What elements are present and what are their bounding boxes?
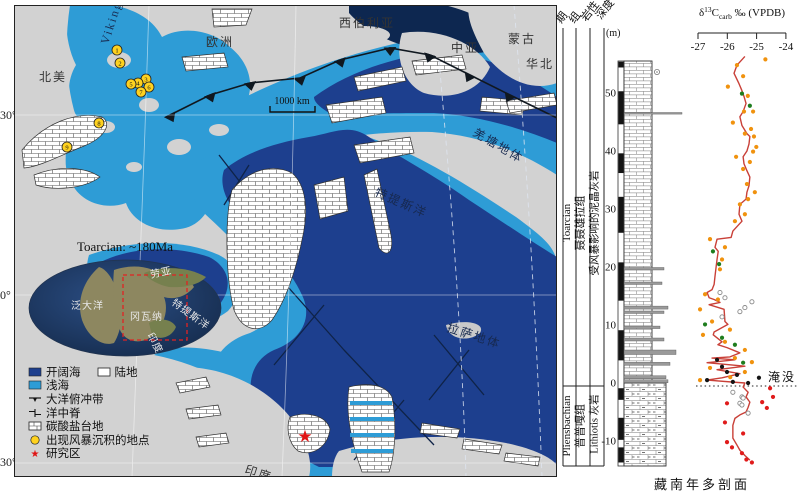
legend-land-label: 陆地 [115, 364, 138, 380]
land-swatch [97, 367, 111, 377]
svg-text:1: 1 [115, 47, 118, 54]
svg-text:泛大洋: 泛大洋 [71, 299, 104, 312]
latitude-label-30n: 30° [0, 108, 14, 123]
svg-text:10: 10 [605, 320, 617, 332]
map-legend: 开阔海 陆地 浅海 大洋俯冲带 洋中脊 碳酸盐台地 出现风暴沉积的地点 ★ [28, 365, 150, 460]
svg-text:9: 9 [65, 144, 68, 151]
svg-text:中亚: 中亚 [451, 40, 479, 55]
svg-text:西伯利亚: 西伯利亚 [339, 15, 395, 30]
depth-unit: (m) [606, 28, 620, 39]
stage-toarcian: Toarcian [561, 203, 573, 242]
axis-subscript: carb [719, 12, 732, 21]
axis-c: C [712, 7, 719, 19]
open-sea-swatch [28, 367, 42, 377]
svg-text:40: 40 [605, 146, 617, 158]
isotope-axis-ticks: -27-26-25-24 [691, 33, 794, 53]
latitude-label-0: 0° [0, 288, 14, 303]
svg-text:蒙古: 蒙古 [508, 31, 536, 46]
svg-text:-25: -25 [749, 41, 764, 53]
svg-text:-24: -24 [779, 41, 794, 53]
drowning-label: 淹没 [768, 369, 796, 384]
axis-units: ‰ (VPDB) [732, 7, 786, 19]
isotope-data-points [698, 57, 775, 464]
svg-text:北美: 北美 [39, 70, 67, 84]
strat-column-panel: 期 组 岩性 深度 (m) Toarcian Pliensbachian 聂聂雄… [556, 0, 800, 499]
study-area-swatch: ★ [28, 448, 42, 458]
svg-text:0: 0 [611, 378, 617, 390]
svg-text:欧洲: 欧洲 [206, 35, 234, 49]
isotope-axis-title: δ13Ccarb ‰ (VPDB) [699, 5, 785, 21]
svg-text:2: 2 [118, 60, 121, 67]
isotope-axis: δ13Ccarb ‰ (VPDB) -27-26-25-24 [691, 5, 794, 53]
scale-bar-label: 1000 km [274, 96, 310, 107]
figure: 30° 0° 30° [0, 0, 800, 499]
formation-nienie: 聂聂雄拉组 [573, 196, 587, 251]
chert-nodule-symbol [654, 69, 659, 74]
description-lithiotis: Lithiotis 灰岩 [588, 394, 601, 453]
svg-text:-10: -10 [601, 436, 616, 448]
platform-swatch [28, 421, 42, 431]
svg-text:5: 5 [129, 81, 132, 88]
svg-text:50: 50 [605, 88, 617, 100]
ridge-swatch [28, 408, 42, 418]
description-storm-limestone: 受风暴影响的泥晶灰岩 [588, 171, 601, 276]
formation-pupuga: 普普嘎组 [573, 404, 587, 448]
study-site-star: ★ [297, 427, 312, 446]
svg-text:-27: -27 [691, 41, 706, 53]
storm-site-swatch [28, 435, 42, 445]
lithiotis-column-lower [624, 383, 666, 466]
latitude-label-30s: 30° [0, 455, 14, 470]
svg-text:冈瓦纳: 冈瓦纳 [130, 310, 163, 323]
svg-text:★: ★ [297, 427, 312, 446]
subduction-swatch [28, 394, 42, 404]
svg-text:20: 20 [605, 262, 617, 274]
inset-title: Toarcian: ~180Ma [77, 239, 173, 254]
orange-dots [698, 57, 768, 382]
svg-text:华北: 华北 [526, 57, 554, 71]
svg-text:-26: -26 [720, 41, 735, 53]
section-title: 藏南年多剖面 [654, 477, 750, 492]
legend-study-area-label: 研究区 [46, 445, 81, 461]
exposure-bar [618, 61, 624, 466]
limestone-column-upper [624, 61, 652, 383]
stage-pliensbachian: Pliensbachian [561, 395, 573, 457]
svg-text:★: ★ [31, 449, 40, 458]
svg-text:8: 8 [97, 120, 100, 127]
red-dots [723, 386, 775, 464]
shallow-sea-swatch [28, 380, 42, 390]
svg-text:30: 30 [605, 204, 617, 216]
